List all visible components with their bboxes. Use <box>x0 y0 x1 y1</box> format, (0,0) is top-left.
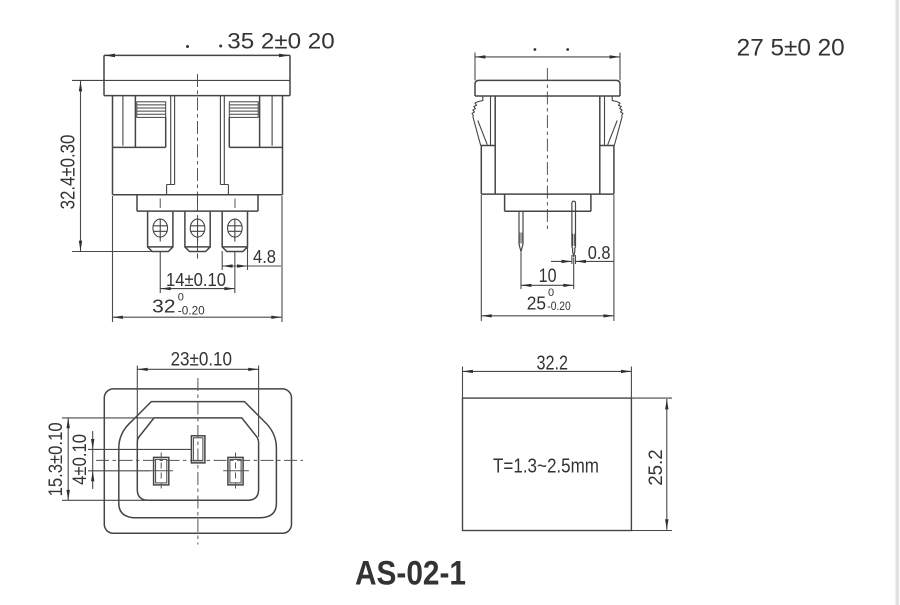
svg-text:25.2: 25.2 <box>646 449 667 485</box>
svg-text:15.3±0.10: 15.3±0.10 <box>46 422 67 496</box>
svg-text:AS-02-1: AS-02-1 <box>355 555 466 593</box>
svg-text:4±0.10: 4±0.10 <box>70 434 91 485</box>
svg-text:T=1.3~2.5mm: T=1.3~2.5mm <box>493 455 599 478</box>
svg-text:23±0.10: 23±0.10 <box>171 349 233 371</box>
svg-text:0: 0 <box>178 292 184 304</box>
svg-text:14±0.10: 14±0.10 <box>166 269 226 290</box>
svg-text:4.8: 4.8 <box>253 246 276 267</box>
svg-text:10: 10 <box>539 265 557 287</box>
svg-text:25: 25 <box>527 292 546 313</box>
svg-text:32.4±0.30: 32.4±0.30 <box>58 135 80 210</box>
svg-text:-0.20: -0.20 <box>547 301 570 313</box>
svg-text:-0.20: -0.20 <box>178 306 205 318</box>
svg-text:0: 0 <box>548 287 554 299</box>
svg-text:32.2: 32.2 <box>537 352 569 375</box>
svg-text:27 5±0 20: 27 5±0 20 <box>737 34 845 61</box>
svg-text:0.8: 0.8 <box>588 242 611 263</box>
svg-text:35 2±0 20: 35 2±0 20 <box>227 29 334 54</box>
svg-text:32: 32 <box>152 297 175 317</box>
